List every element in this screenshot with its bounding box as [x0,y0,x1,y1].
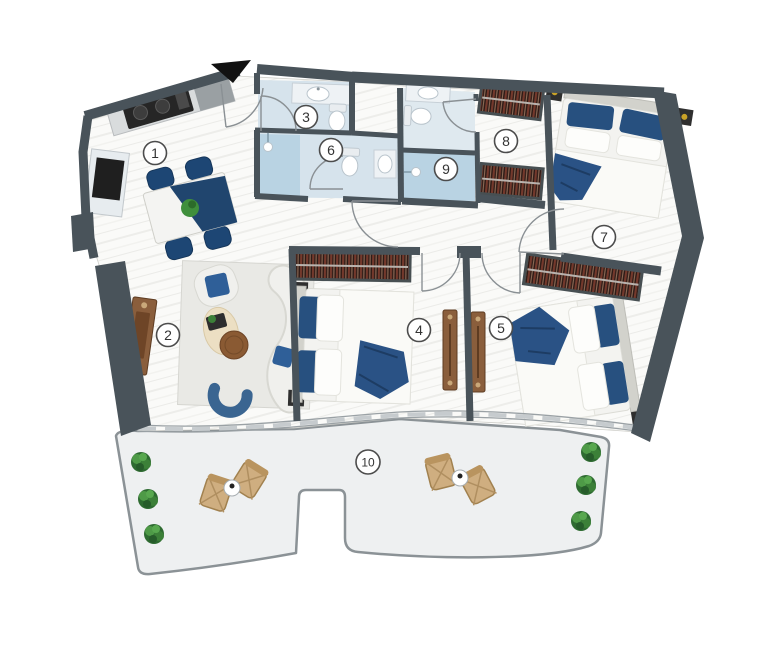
room-number-label: 5 [497,320,505,336]
plant [571,511,591,531]
blue-pillow [566,102,614,131]
floor-plan-page: 1 2 3 4 5 6 7 8 [0,0,768,649]
room-number-label: 2 [164,327,172,343]
kitchen-appliance [84,149,130,217]
room-number-label: 3 [302,109,310,125]
plant [144,524,164,544]
vanity-sink [292,83,351,105]
room-badge-3: 3 [295,106,318,129]
balcony-floor [116,419,609,574]
floor-plan-canvas: 1 2 3 4 5 6 7 8 [0,0,768,649]
bedroom-4 [288,282,414,410]
room-badge-1: 1 [144,142,167,165]
room-number-label: 7 [600,229,608,245]
room-badge-6: 6 [320,139,343,162]
plant [576,475,596,495]
room-number-label: 1 [151,145,159,161]
room-number-label: 10 [361,456,375,470]
room-number-label: 6 [327,142,335,158]
room-badge-7: 7 [593,226,616,249]
plant [131,452,151,472]
plant [138,489,158,509]
room-badge-2: 2 [157,324,180,347]
plant [581,442,601,462]
room-badge-9: 9 [435,158,458,181]
room-badge-10: 10 [356,450,380,474]
room-number-label: 8 [502,133,510,149]
room-badge-8: 8 [495,130,518,153]
room-number-label: 4 [415,322,423,338]
wardrobe-closet-bottom [479,163,543,198]
room-badge-4: 4 [408,319,431,342]
wardrobe-bedroom-4 [294,251,410,281]
room-badge-5: 5 [490,317,513,340]
washbasin [374,150,396,178]
balcony [116,419,609,574]
room-number-label: 9 [442,161,450,177]
